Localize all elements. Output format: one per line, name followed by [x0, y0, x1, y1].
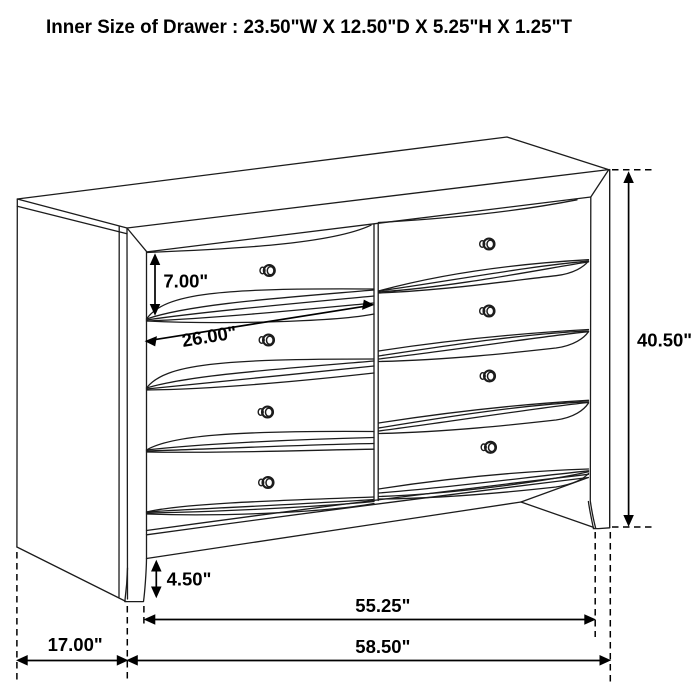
- svg-text:40.50": 40.50": [637, 330, 692, 351]
- svg-text:55.25": 55.25": [355, 595, 410, 616]
- svg-text:17.00": 17.00": [48, 634, 103, 655]
- svg-text:4.50": 4.50": [167, 569, 212, 590]
- svg-text:7.00": 7.00": [163, 271, 208, 292]
- svg-text:58.50": 58.50": [355, 636, 410, 657]
- svg-text:Inner Size of Drawer : 23.50"W: Inner Size of Drawer : 23.50"W X 12.50"D…: [46, 17, 572, 38]
